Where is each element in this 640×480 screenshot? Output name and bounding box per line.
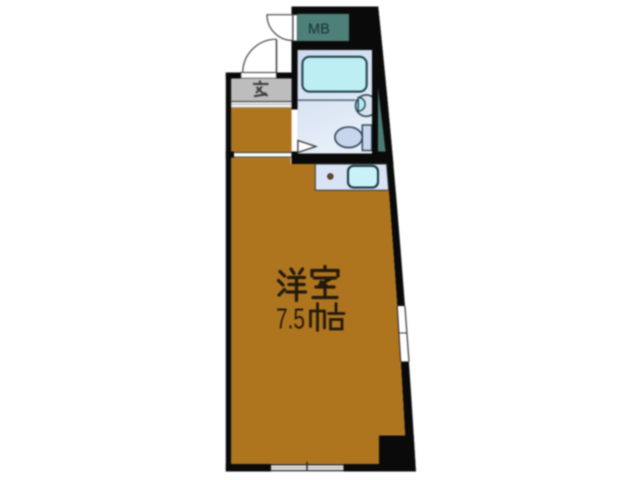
svg-text:7.5: 7.5: [276, 304, 305, 336]
svg-text:MB: MB: [308, 22, 330, 38]
